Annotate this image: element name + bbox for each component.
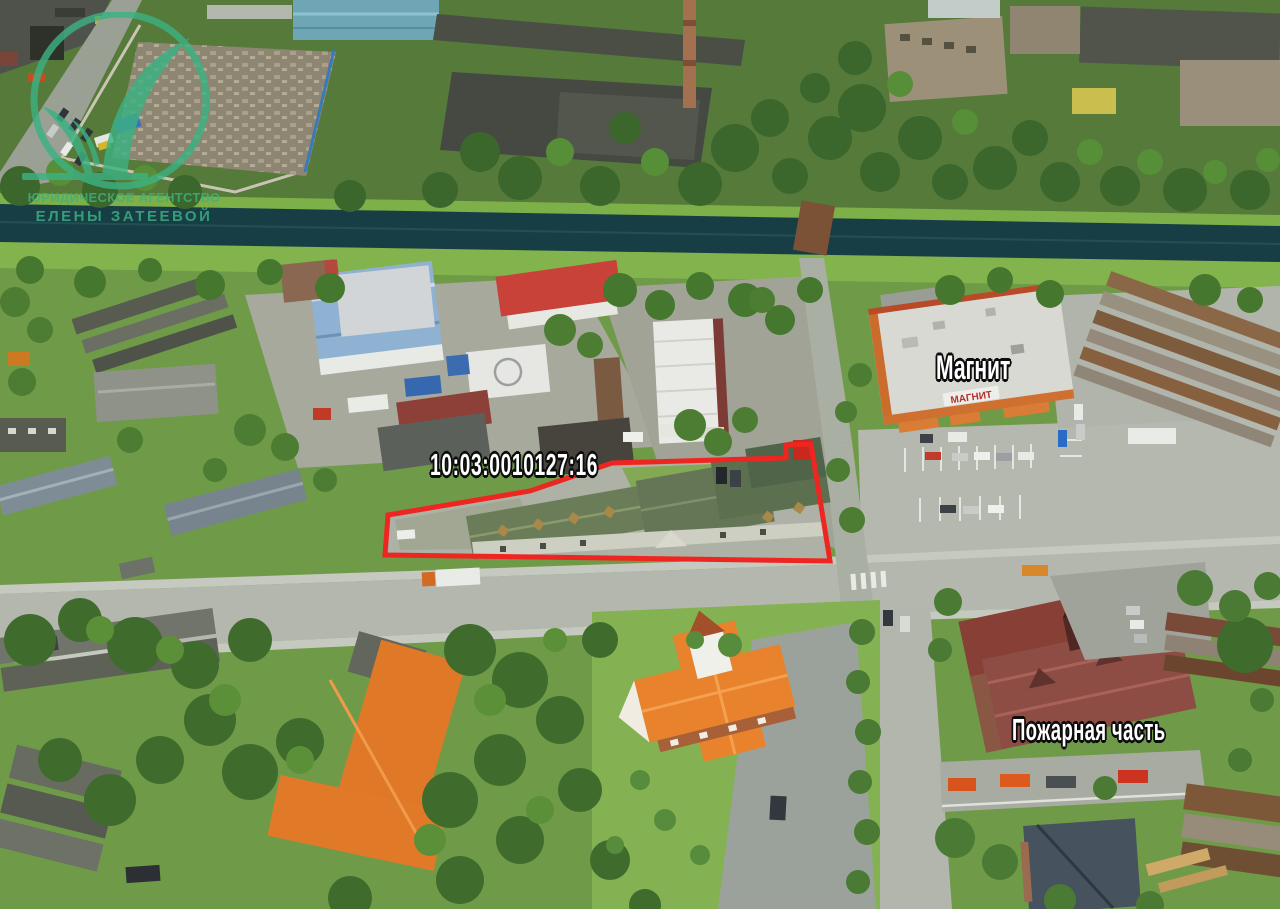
apartment-building (1019, 818, 1141, 909)
agency-watermark: ЮРИДИЧЕСКОЕ АГЕНТСТВО ЕЛЕНЫ ЗАТЕЕВОЙ (16, 12, 232, 234)
agency-logo-icon (16, 12, 232, 190)
sprout-leaf-icon (102, 38, 190, 180)
watermark-line1: ЮРИДИЧЕСКОЕ АГЕНТСТВО (16, 190, 232, 205)
fire-station-label: Пожарная часть (1012, 712, 1165, 748)
white-car (397, 529, 416, 539)
magnit-store-label: Магнит (936, 349, 1010, 388)
cadastral-number-label: 10:03:0010127:16 (430, 447, 598, 483)
aerial-photo: МАГНИТ (0, 0, 1280, 909)
watermark-line2: ЕЛЕНЫ ЗАТЕЕВОЙ (16, 208, 232, 225)
